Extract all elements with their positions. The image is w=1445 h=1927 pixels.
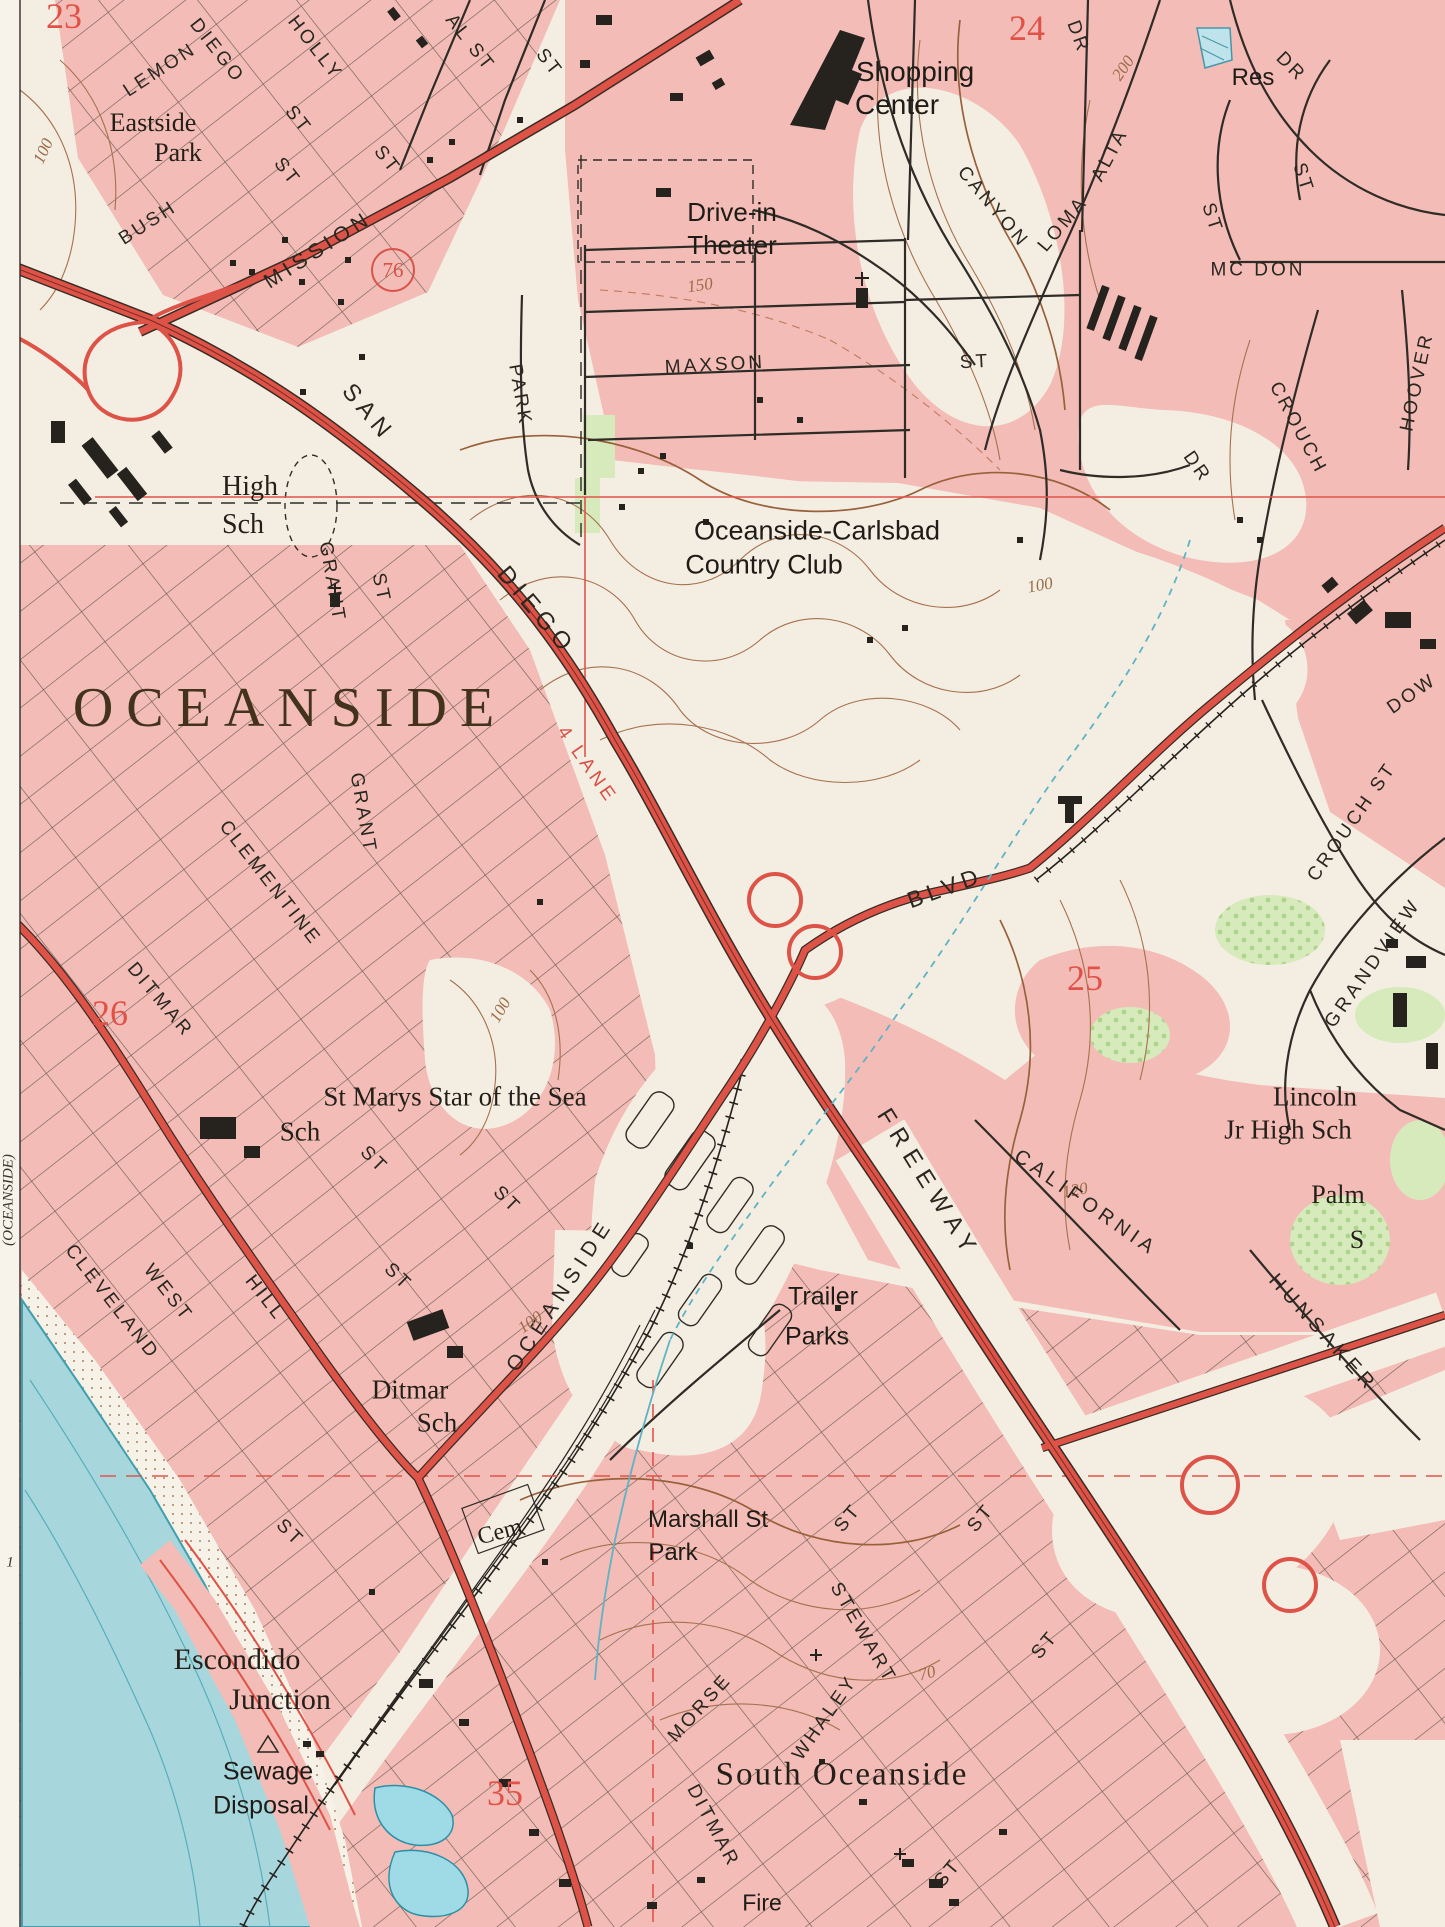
- label-st-lemon: LEMON: [120, 40, 200, 101]
- label-pl-palm1: Palm: [1311, 1182, 1364, 1208]
- label-st-loma: LOMA: [1035, 193, 1092, 256]
- label-pl-marshall2: Park: [648, 1541, 697, 1565]
- label-pl-fire: Fire: [742, 1892, 782, 1915]
- label-st-canyon-dr: DR: [1063, 18, 1092, 56]
- label-pl-drivein2: Theater: [687, 232, 777, 258]
- label-pl-highsch2: Sch: [222, 511, 264, 539]
- label-st-clementine: CLEMENTINE: [216, 817, 325, 949]
- label-pl-shopping: Shopping: [856, 58, 974, 86]
- label-st-morse: MORSE: [665, 1670, 736, 1746]
- label-st-california: CALIFORNIA: [1011, 1146, 1162, 1260]
- label-st-whaley: WHALEY: [789, 1672, 861, 1763]
- label-st-grant2: GRANT: [347, 771, 380, 855]
- label-st-st12: ST: [831, 1500, 865, 1535]
- label-st-st11: ST: [273, 1516, 308, 1551]
- label-st-maxson: MAXSON: [664, 353, 765, 377]
- map-labels-layer: 23LEMONDIEGOHOLLYAL STSTEastsideParkSTST…: [0, 0, 1445, 1927]
- label-pl-res: Res: [1232, 66, 1275, 90]
- label-st-holly: HOLLY: [284, 12, 346, 84]
- label-pl-stmarys2: Sch: [280, 1119, 321, 1146]
- label-st-west: WEST: [140, 1261, 196, 1325]
- label-pl-eastside2: Park: [154, 140, 202, 166]
- label-pl-stmarys1: St Marys Star of the Sea: [323, 1084, 586, 1111]
- label-pl-drivein: Drive-in: [687, 199, 777, 225]
- label-st-oceanside-blvd: OCEANSIDE: [503, 1215, 617, 1375]
- label-st-st4: ST: [370, 142, 404, 178]
- label-pl-sewage1: Sewage: [223, 1760, 313, 1785]
- label-st-crouch-n: CROUCH: [1266, 379, 1330, 477]
- label-pl-marshall1: Marshall St: [648, 1508, 768, 1532]
- label-st-maxson-st: ST: [959, 352, 990, 373]
- label-pl-palm2: S: [1350, 1227, 1364, 1253]
- label-st-hunsaker: HUNSAKER: [1265, 1270, 1381, 1396]
- label-st-hill: HILL: [241, 1272, 288, 1325]
- label-st-st14: ST: [1028, 1627, 1062, 1662]
- label-st-st13: ST: [964, 1500, 998, 1535]
- label-st-bush: BUSH: [116, 197, 181, 248]
- label-pl-ditmarsch2: Sch: [417, 1410, 458, 1437]
- label-st-dow: DOW: [1384, 670, 1440, 717]
- label-st-grant1: GRANT: [316, 540, 349, 624]
- label-st-st6: ST: [1198, 201, 1225, 236]
- label-pl-cc2: Country Club: [685, 552, 843, 579]
- label-pl-city: OCEANSIDE: [73, 680, 507, 736]
- label-pl-sewage2: Disposal: [213, 1794, 309, 1819]
- label-pl-eastside: Eastside: [110, 110, 197, 136]
- label-pl-shopping2: Center: [855, 91, 939, 119]
- label-st-st7: ST: [369, 571, 394, 605]
- label-sec-24: 24: [1009, 10, 1045, 46]
- label-st-grandview: GRANDVIEW: [1321, 895, 1424, 1031]
- label-lbl-4lane: 4 LANE: [554, 723, 621, 807]
- label-st-st15: ST: [931, 1855, 965, 1890]
- label-st-mcdon: MC DON: [1210, 261, 1305, 280]
- label-st-st10: ST: [381, 1260, 416, 1295]
- label-st-ditmar-s: DITMAR: [683, 1781, 742, 1870]
- label-st-blvd: BLVD: [904, 864, 986, 912]
- label-pl-trailer2: Parks: [785, 1325, 849, 1350]
- topo-map: 23LEMONDIEGOHOLLYAL STSTEastsideParkSTST…: [0, 0, 1445, 1927]
- label-pl-cem: Cem: [475, 1515, 525, 1550]
- label-pl-escondido1: Escondido: [174, 1645, 301, 1675]
- label-cont-200: 200: [1109, 53, 1138, 84]
- label-margin-quad: (OCEANSIDE): [2, 1154, 17, 1246]
- label-pl-lincoln1: Lincoln: [1273, 1084, 1357, 1111]
- label-route-76: 76: [371, 248, 415, 292]
- label-st-st9: ST: [490, 1183, 525, 1218]
- label-st-st8: ST: [357, 1143, 392, 1178]
- label-cont-70: 70: [917, 1663, 938, 1684]
- label-st-st3: ST: [270, 154, 304, 190]
- label-pl-trailer1: Trailer: [788, 1285, 858, 1310]
- label-pl-highsch: High: [222, 473, 278, 501]
- label-pl-ditmarsch1: Ditmar: [372, 1377, 448, 1404]
- label-st-diego-s: DIEGO: [492, 562, 579, 660]
- label-st-al-st: AL ST: [442, 11, 498, 76]
- label-st-stewart: STEWART: [827, 1579, 900, 1686]
- label-sec-23: 23: [46, 0, 82, 34]
- label-st-cleveland: CLEVELAND: [61, 1241, 162, 1363]
- label-st-canyon: CANYON: [954, 163, 1032, 251]
- label-st-dr2: DR: [1272, 48, 1309, 85]
- label-st-park: PARK: [505, 363, 535, 428]
- label-sec-35: 35: [487, 1775, 523, 1811]
- label-st-mission: MISSION: [260, 208, 375, 293]
- label-sec-26: 26: [92, 995, 128, 1031]
- label-st-ditmar-n: DITMAR: [124, 959, 197, 1041]
- label-st-st1: ST: [532, 45, 566, 81]
- label-st-hoover: HOOVER: [1397, 331, 1436, 433]
- label-st-crouch-s: CROUCH ST: [1304, 759, 1400, 885]
- label-sec-25: 25: [1067, 960, 1103, 996]
- label-st-st2: ST: [281, 102, 315, 138]
- label-cont-150: 150: [686, 275, 714, 295]
- label-pl-lincoln2: Jr High Sch: [1224, 1117, 1352, 1144]
- label-pl-cc1: Oceanside-Carlsbad: [694, 518, 940, 545]
- label-st-alta: ALTA: [1088, 126, 1131, 185]
- label-cont-100c: 100: [486, 995, 513, 1026]
- label-st-st5: ST: [1289, 161, 1316, 196]
- label-pl-escondido2: Junction: [229, 1685, 331, 1715]
- label-st-san: SAN: [337, 379, 399, 446]
- label-st-freeway: FREEWAY: [872, 1105, 984, 1264]
- label-pl-southoceanside: South Oceanside: [716, 1759, 969, 1792]
- label-cont-100a: 100: [30, 136, 56, 166]
- label-cont-100b: 100: [1026, 574, 1054, 595]
- label-st-dr3: DR: [1180, 448, 1215, 486]
- label-margin-1: 1: [6, 1556, 14, 1571]
